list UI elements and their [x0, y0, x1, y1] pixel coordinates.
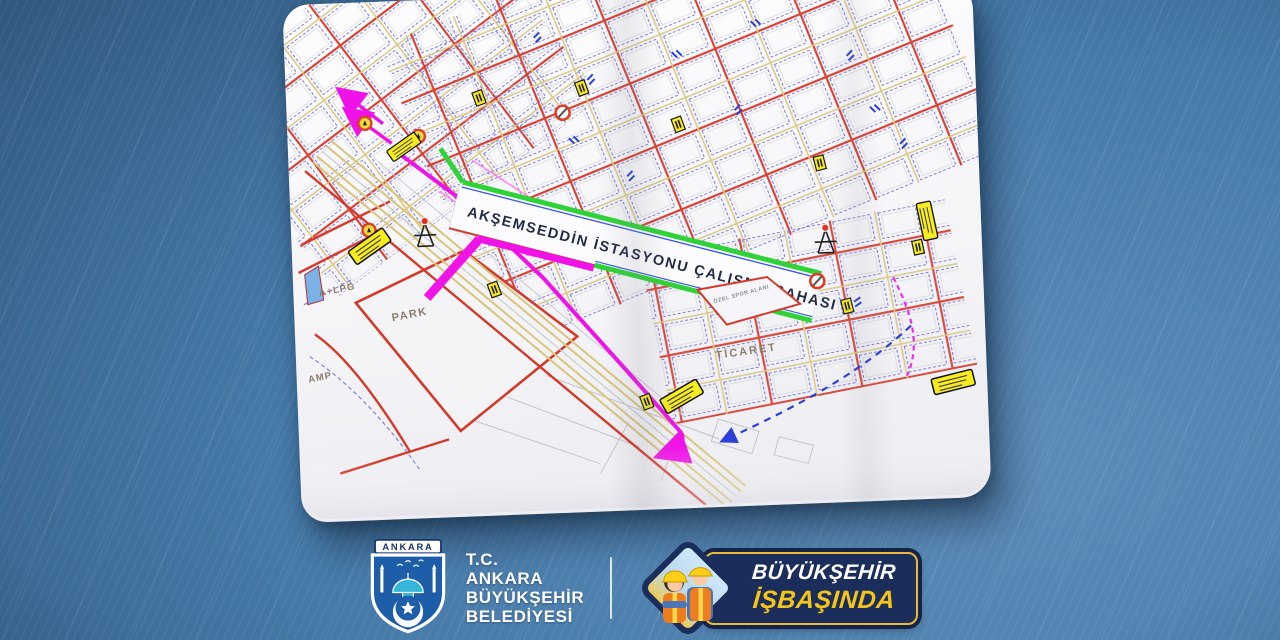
municipality-brand: ANKARA T.C. ANKARA BÜYÜKŞEHİR BELEDİYESİ — [362, 539, 584, 637]
footer: ANKARA T.C. ANKARA BÜYÜKŞEHİR BELEDİYESİ — [0, 536, 1280, 640]
footer-divider — [610, 557, 612, 619]
traffic-plan-map: AKŞEMSEDDİN İSTASYONU ÇALIŞMA SAHASI — [282, 0, 991, 523]
page-canvas: { "map": { "title": "AKŞEMSEDDİN İSTASYO… — [0, 0, 1280, 640]
org-line-ankara: ANKARA — [466, 569, 584, 588]
ankara-municipality-logo-icon: ANKARA — [362, 539, 454, 637]
city-map-drawing: AKŞEMSEDDİN İSTASYONU ÇALIŞMA SAHASI — [282, 0, 991, 520]
org-line-buyuksehir: BÜYÜKŞEHİR — [466, 588, 584, 607]
campaign-badge: BÜYÜKŞEHİR İŞBAŞINDA — [638, 538, 918, 638]
paper-bottom-shading — [300, 434, 992, 520]
campaign-line-1: BÜYÜKŞEHİR — [751, 561, 897, 585]
municipality-name: T.C. ANKARA BÜYÜKŞEHİR BELEDİYESİ — [466, 550, 584, 627]
worker-man — [687, 568, 713, 621]
logo-banner-text: ANKARA — [382, 542, 433, 552]
construction-workers-icon — [638, 538, 738, 638]
org-line-tc: T.C. — [466, 550, 584, 569]
label-lpg: A+LPG — [318, 281, 356, 299]
label-amp: AMP — [307, 370, 333, 385]
worker-woman — [662, 571, 688, 623]
campaign-line-2: İŞBAŞINDA — [751, 586, 897, 615]
org-line-belediyesi: BELEDİYESİ — [466, 607, 584, 626]
